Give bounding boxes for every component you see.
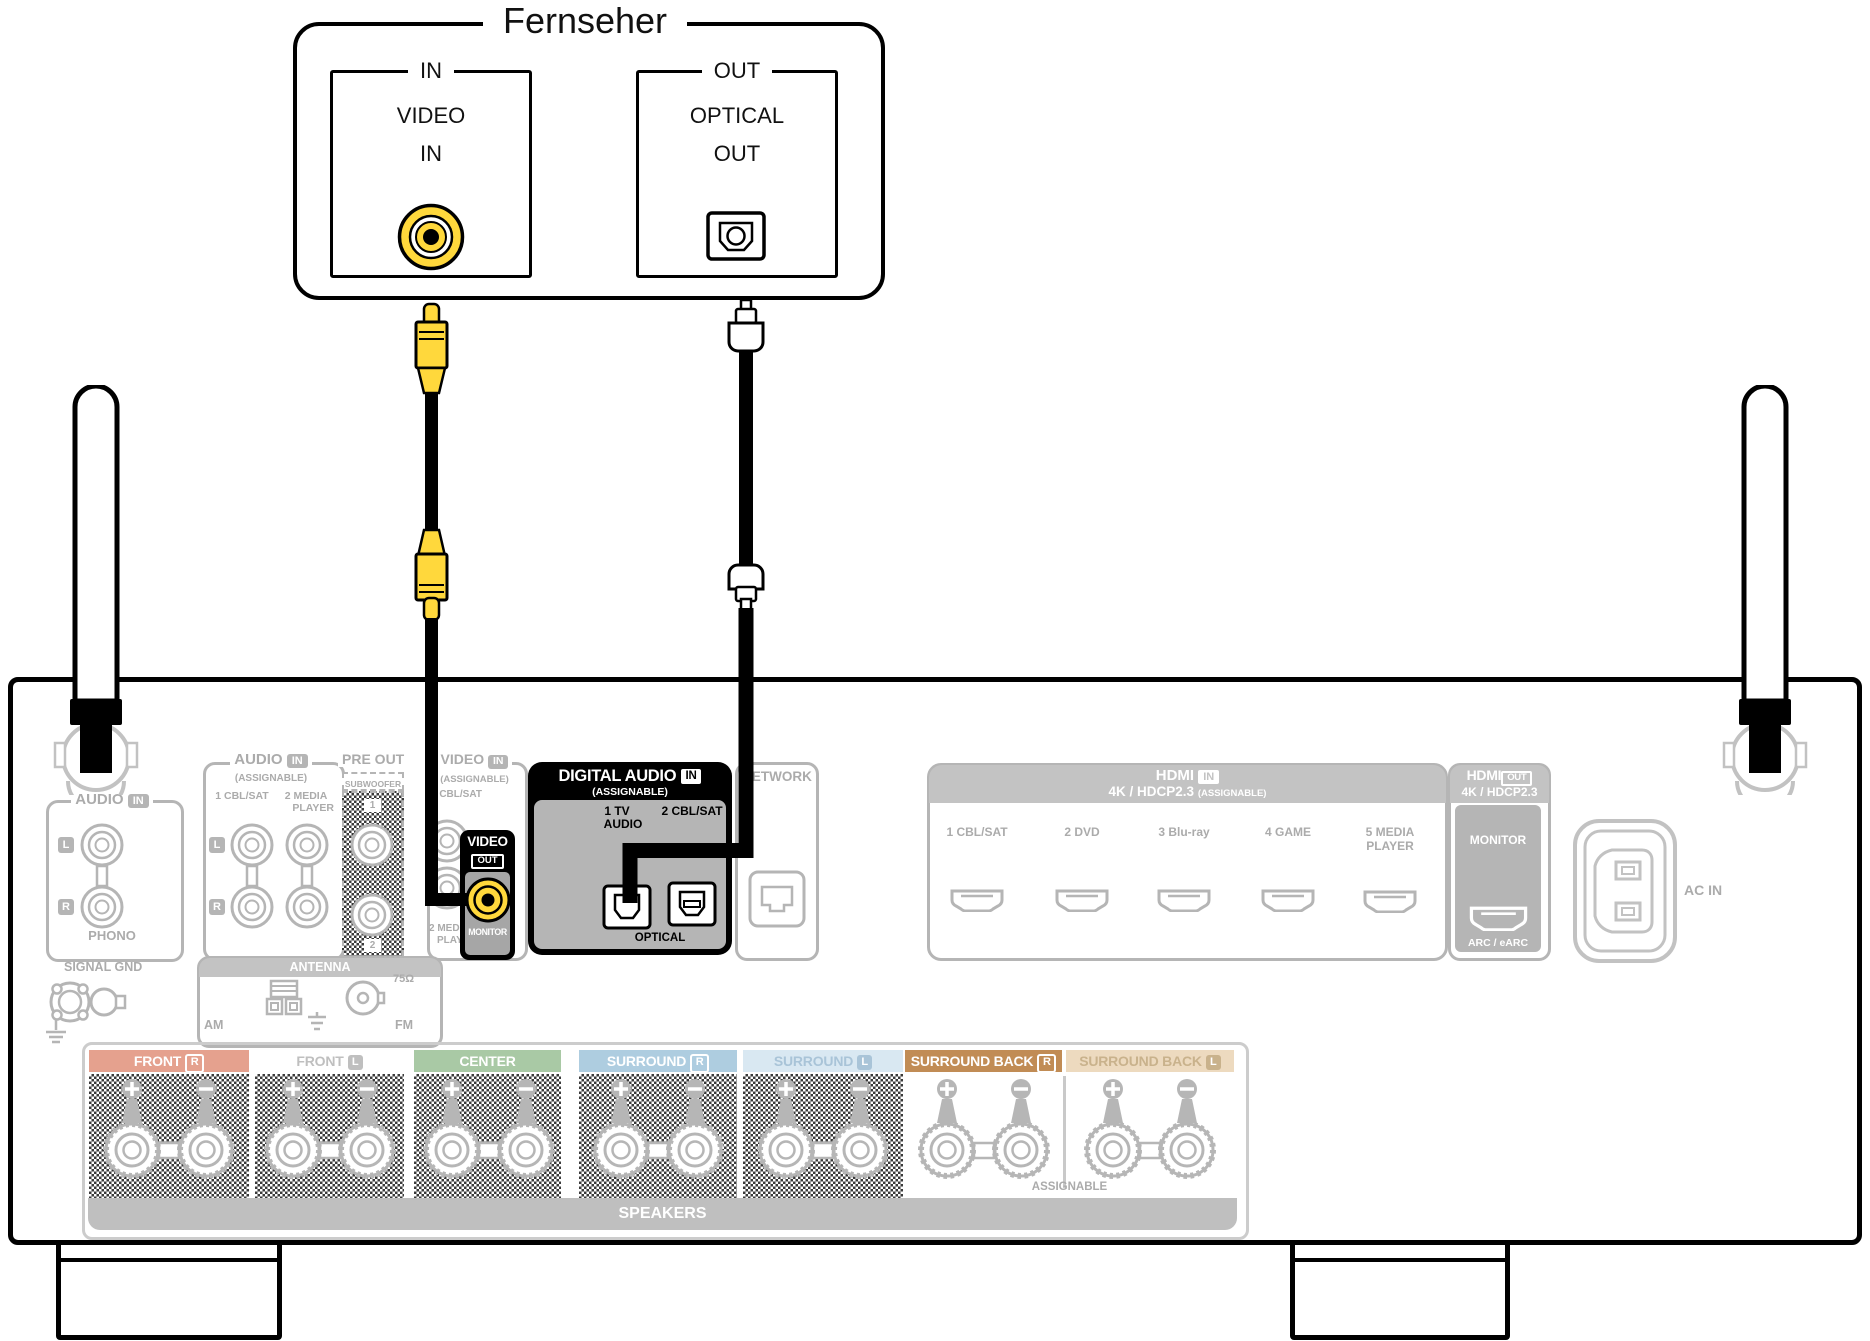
channel-l-badge: L [209, 837, 225, 853]
rca-jack-pair-icon [228, 821, 276, 931]
in-badge: IN [287, 754, 308, 768]
subwoofer-jack-1 [350, 823, 394, 872]
speaker-group-center: CENTER [414, 1050, 561, 1196]
subwoofer-jack-2 [350, 893, 394, 942]
in-badge: IN [681, 769, 702, 784]
speaker-binding-posts-icon [1075, 1074, 1225, 1186]
signal-gnd-label: SIGNAL GND [64, 960, 142, 974]
tv-video-in-box-label: IN [333, 58, 529, 84]
channel-r-badge: R [58, 899, 74, 915]
receiver-foot-left [56, 1240, 282, 1340]
connection-diagram: Fernseher IN VIDEO IN OUT OPTICAL OUT [0, 0, 1870, 1341]
tv-video-in-label: IN [333, 141, 529, 167]
tv-optical-jack-icon [706, 211, 766, 261]
tv-video-label: VIDEO [333, 103, 529, 129]
network-label: NETWORK [738, 769, 816, 785]
hdmi-out-panel: MONITOR ARC / eARC [1455, 805, 1541, 952]
speaker-binding-posts-icon [583, 1074, 733, 1186]
digital-audio-sub: (ASSIGNABLE) [528, 786, 732, 798]
hdmi-out-port-icon [1467, 905, 1530, 931]
receiver-foot-right [1290, 1240, 1510, 1340]
audio-in-col1-label: 1 CBL/SAT [213, 790, 271, 802]
section-network: NETWORK [735, 762, 819, 961]
am-terminal-icon [262, 978, 306, 1036]
rca-jack-icon [350, 893, 394, 937]
hdmi-out-label: HDMI [1467, 767, 1502, 783]
digital-audio-label: DIGITAL AUDIO IN [528, 767, 732, 786]
optical-caption: OPTICAL [628, 932, 692, 944]
wifi-antenna-right-icon [1718, 385, 1812, 795]
hdmi-in-line2: 4K / HDCP2.3 [1109, 784, 1195, 799]
hdmi-port-icon [948, 888, 1006, 912]
section-digital-audio: DIGITAL AUDIO IN (ASSIGNABLE) 1 TV AUDIO… [528, 762, 732, 955]
video-in1-label: 1 CBL/SAT [431, 789, 482, 800]
speaker-binding-posts-icon [909, 1074, 1059, 1186]
audio-in-jacks-mediaplayer [283, 821, 331, 936]
hdmi-port-icon [1155, 888, 1213, 912]
speaker-group-surround-back-r: SURROUND BACKR [905, 1050, 1062, 1196]
hdmi-in-label: HDMI [1156, 767, 1194, 784]
am-label: AM [204, 1018, 223, 1032]
hdmi-port-2: 2 DVD [1024, 826, 1140, 917]
digital-jack1-label2: AUDIO [600, 817, 646, 831]
optical-jack-2-icon [667, 881, 717, 927]
hdmi-out-band: HDMIOUT 4K / HDCP2.3 [1450, 765, 1549, 803]
tv-optical-out-label: OUT [639, 141, 835, 167]
channel-l-badge: L [58, 837, 74, 853]
ground-terminal-icon [44, 976, 148, 1046]
pre-out-label: PRE OUT [338, 751, 406, 767]
hdmi-port-icon [1259, 888, 1317, 912]
speaker-group-surround-l: SURROUNDL [743, 1050, 903, 1196]
speaker-binding-posts-icon [748, 1074, 898, 1186]
audio-in-section-label: AUDIO IN (ASSIGNABLE) [203, 751, 339, 786]
digital-jack1-label: 1 TV [594, 804, 640, 818]
subwoofer-label: SUBWOOFER [342, 772, 404, 791]
video-out-block: VIDEO OUT MONITOR [460, 830, 515, 960]
ac-in-label: AC IN [1684, 882, 1722, 898]
fm-ohm-label: 75Ω [393, 973, 414, 985]
in-badge: IN [128, 794, 149, 808]
hdmi-port-4: 4 GAME [1230, 826, 1346, 917]
speaker-binding-posts-icon [94, 1074, 244, 1186]
arc-earc-label: ARC / eARC [1455, 937, 1541, 949]
tv-video-rca-jack-icon [396, 202, 466, 272]
digital-audio-panel: 1 TV AUDIO 2 CBL/SAT OPTICAL [534, 800, 726, 949]
fm-coax-icon [344, 978, 386, 1018]
tv-title: Fernseher [293, 0, 877, 42]
speaker-group-front-r: FRONTR [89, 1050, 249, 1196]
optical-jack-1-icon [602, 884, 652, 930]
speaker-binding-posts-icon [414, 1074, 564, 1186]
video-in-section-label: VIDEO IN (ASSIGNABLE) [427, 751, 522, 786]
wifi-antenna-left-icon [49, 385, 143, 795]
out-badge: OUT [1501, 771, 1532, 786]
in-badge: IN [1198, 770, 1219, 784]
hdmi-in-sub: (ASSIGNABLE) [1198, 788, 1267, 799]
hdmi-port-5: 5 MEDIAPLAYER [1332, 826, 1448, 918]
rca-jack-icon [350, 823, 394, 867]
phono-jacks [78, 821, 126, 936]
in-badge: IN [488, 755, 509, 769]
hdmi-port-3: 3 Blu-ray [1126, 826, 1242, 917]
antenna-ground-icon [306, 1012, 328, 1036]
out-badge: OUT [471, 854, 503, 869]
rca-jack-pair-icon [78, 821, 126, 931]
rca-jack-pair-icon [283, 821, 331, 931]
speaker-binding-posts-icon [255, 1074, 405, 1186]
monitor-label: MONITOR [463, 927, 512, 937]
speaker-group-surround-back-l: SURROUND BACKL [1066, 1050, 1234, 1196]
audio-in-col2-label: 2 MEDIA [278, 790, 334, 802]
ethernet-jack-icon [747, 869, 807, 929]
audio-in-col2-label2: PLAYER [278, 802, 334, 814]
hdmi-port-icon [1053, 888, 1111, 912]
ac-inlet-icon [1572, 818, 1678, 964]
channel-r-badge: R [209, 899, 225, 915]
phono-caption: PHONO [46, 928, 178, 943]
fm-label: FM [395, 1018, 413, 1032]
audio-in-jacks-cblsat [228, 821, 276, 936]
subwoofer-2-label: 2 [364, 939, 381, 952]
monitor-panel: MONITOR [465, 872, 510, 955]
hdmi-out-line2: 4K / HDCP2.3 [1450, 786, 1549, 798]
surround-back-divider [1063, 1076, 1066, 1188]
speakers-bar: SPEAKERS [88, 1198, 1237, 1230]
speaker-group-surround-r: SURROUNDR [579, 1050, 737, 1196]
digital-jack2-label: 2 CBL/SAT [660, 804, 724, 818]
hdmi-out-monitor-label: MONITOR [1455, 833, 1541, 847]
hdmi-in-band: HDMI IN 4K / HDCP2.3 (ASSIGNABLE) [929, 765, 1446, 803]
assignable-label: ASSIGNABLE [905, 1181, 1234, 1193]
speaker-group-front-l: FRONTL [255, 1050, 404, 1196]
hdmi-port-1: 1 CBL/SAT [919, 826, 1035, 917]
tv-optical-label: OPTICAL [639, 103, 835, 129]
subwoofer-1-label: 1 [364, 799, 381, 812]
section-hdmi-out: HDMIOUT 4K / HDCP2.3 MONITOR ARC / eARC [1448, 763, 1551, 961]
hdmi-port-icon [1361, 889, 1419, 913]
tv-optical-out-box-label: OUT [639, 58, 835, 84]
video-out-label: VIDEO [460, 834, 515, 849]
